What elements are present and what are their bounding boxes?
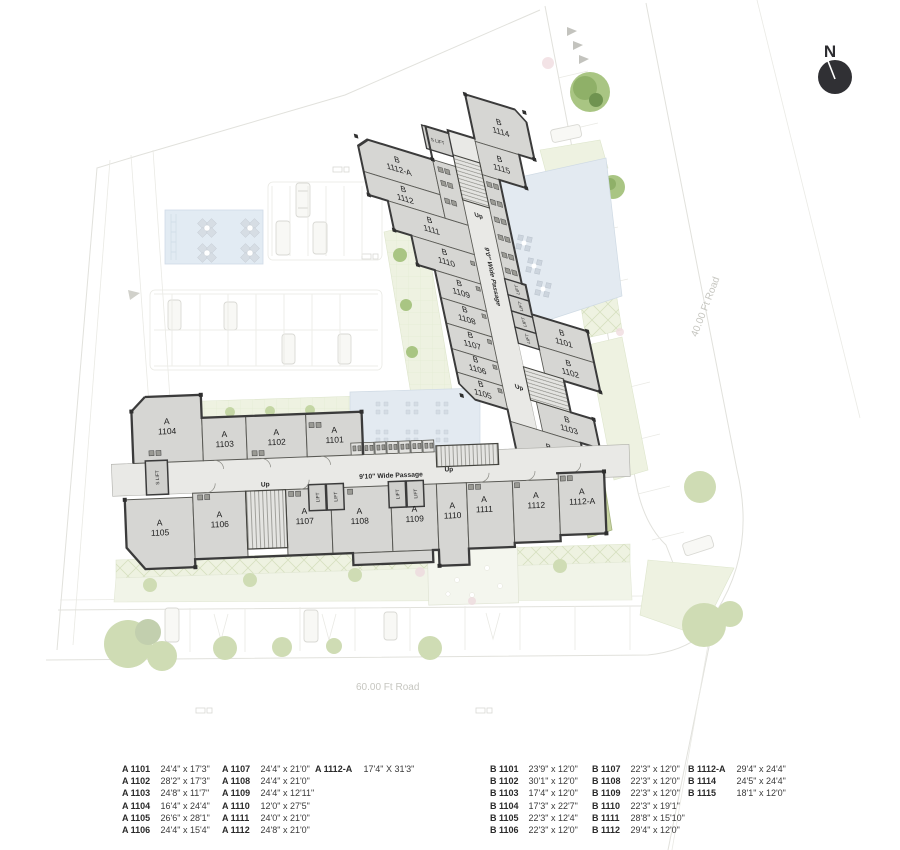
legend-id: A 1103: [122, 787, 158, 799]
legend-dim: 29'4" x 24'4": [737, 764, 786, 774]
legend-id: A 1101: [122, 763, 158, 775]
legend-id: A 1105: [122, 812, 158, 824]
legend-dim: 22'3" x 12'0": [631, 764, 680, 774]
stair-a-top: [436, 443, 499, 466]
legend-id: B 1103: [490, 787, 526, 799]
unit-a1111: [466, 481, 514, 549]
legend-dim: 18'1" x 12'0": [737, 788, 786, 798]
legend-dim: 17'4" X 31'3": [364, 764, 415, 774]
north-compass: N: [818, 42, 852, 94]
legend-dim: 12'0" x 27'5": [261, 801, 310, 811]
legend-dim: 24'4" x 17'3": [161, 764, 210, 774]
legend-dim: 24'8" x 21'0": [261, 825, 310, 835]
site-plan-drawing: S LIFT LIFT LIFT LIFT LIFT: [0, 0, 900, 850]
legend-id: B 1110: [592, 800, 628, 812]
legend-id: A 1112: [222, 824, 258, 836]
legend-id: A 1104: [122, 800, 158, 812]
s-lift-label-a: S LIFT: [155, 470, 162, 485]
legend-dim: 22'3" x 12'0": [529, 825, 578, 835]
unit-a1112: [512, 479, 560, 543]
legend-dim: 22'3" x 12'4": [529, 813, 578, 823]
unit-a1110: [436, 483, 469, 566]
legend-id: A 1109: [222, 787, 258, 799]
legend-id: B 1101: [490, 763, 526, 775]
parking-pool: [165, 210, 263, 264]
legend-id: B 1112-A: [688, 763, 734, 775]
lift-label: LIFT: [333, 492, 339, 502]
unit-schedule-legend: A 1101 24'4" x 17'3" A 1102 28'2" x 17'3…: [0, 763, 900, 850]
legend-col-a3: A 1112-A 17'4" X 31'3": [315, 763, 414, 775]
legend-dim: 16'4" x 24'4": [161, 801, 210, 811]
legend-id: A 1110: [222, 800, 258, 812]
legend-dim: 17'4" x 12'0": [529, 788, 578, 798]
legend-id: A 1112-A: [315, 763, 361, 775]
legend-dim: 29'4" x 12'0": [631, 825, 680, 835]
legend-col-b3: B 1112-A 29'4" x 24'4" B 1114 24'5" x 24…: [688, 763, 786, 800]
legend-dim: 22'3" x 12'0": [631, 788, 680, 798]
legend-dim: 26'6" x 28'1": [161, 813, 210, 823]
bottom-road-label: 60.00 Ft Road: [356, 682, 419, 693]
lift-label: LIFT: [395, 489, 401, 499]
legend-dim: 24'8" x 11'7": [161, 788, 210, 798]
legend-dim: 17'3" x 22'7": [529, 801, 578, 811]
legend-col-b2: B 1107 22'3" x 12'0" B 1108 22'3" x 12'0…: [592, 763, 685, 836]
legend-id: A 1111: [222, 812, 258, 824]
legend-id: A 1108: [222, 775, 258, 787]
legend-id: B 1106: [490, 824, 526, 836]
legend-id: B 1108: [592, 775, 628, 787]
legend-col-b1: B 1101 23'9" x 12'0" B 1102 30'1" x 12'0…: [490, 763, 578, 836]
stair-a-mid: [246, 490, 288, 549]
lift-label: LIFT: [413, 489, 419, 499]
legend-dim: 22'3" x 12'0": [631, 776, 680, 786]
legend-dim: 28'2" x 17'3": [161, 776, 210, 786]
right-road-label: 40.00 Ft Road: [689, 275, 722, 338]
legend-id: B 1104: [490, 800, 526, 812]
legend-dim: 24'5" x 24'4": [737, 776, 786, 786]
legend-dim: 24'4" x 15'4": [161, 825, 210, 835]
legend-col-a2: A 1107 24'4" x 21'0" A 1108 24'4" x 21'0…: [222, 763, 314, 836]
legend-dim: 24'4" x 21'0": [261, 764, 310, 774]
legend-id: B 1102: [490, 775, 526, 787]
up-label-a-mid: Up: [261, 481, 270, 488]
legend-id: B 1109: [592, 787, 628, 799]
legend-col-a1: A 1101 24'4" x 17'3" A 1102 28'2" x 17'3…: [122, 763, 210, 836]
lift-label: LIFT: [315, 492, 321, 502]
legend-dim: 24'4" x 21'0": [261, 776, 310, 786]
legend-dim: 22'3" x 19'1": [631, 801, 680, 811]
legend-id: B 1112: [592, 824, 628, 836]
legend-id: A 1106: [122, 824, 158, 836]
legend-id: B 1114: [688, 775, 734, 787]
site-plan-page: S LIFT LIFT LIFT LIFT LIFT: [0, 0, 900, 850]
legend-id: B 1107: [592, 763, 628, 775]
legend-id: A 1107: [222, 763, 258, 775]
legend-dim: 24'4" x 12'11": [261, 788, 315, 798]
legend-dim: 24'0" x 21'0": [261, 813, 310, 823]
legend-dim: 28'8" x 15'10": [631, 813, 685, 823]
legend-dim: 30'1" x 12'0": [529, 776, 578, 786]
legend-id: B 1105: [490, 812, 526, 824]
legend-id: A 1102: [122, 775, 158, 787]
legend-dim: 23'9" x 12'0": [529, 764, 578, 774]
north-label: N: [824, 42, 836, 61]
legend-id: B 1115: [688, 787, 734, 799]
legend-id: B 1111: [592, 812, 628, 824]
bottom-road-stalls: [190, 606, 630, 652]
up-label-a-right: Up: [444, 466, 453, 473]
